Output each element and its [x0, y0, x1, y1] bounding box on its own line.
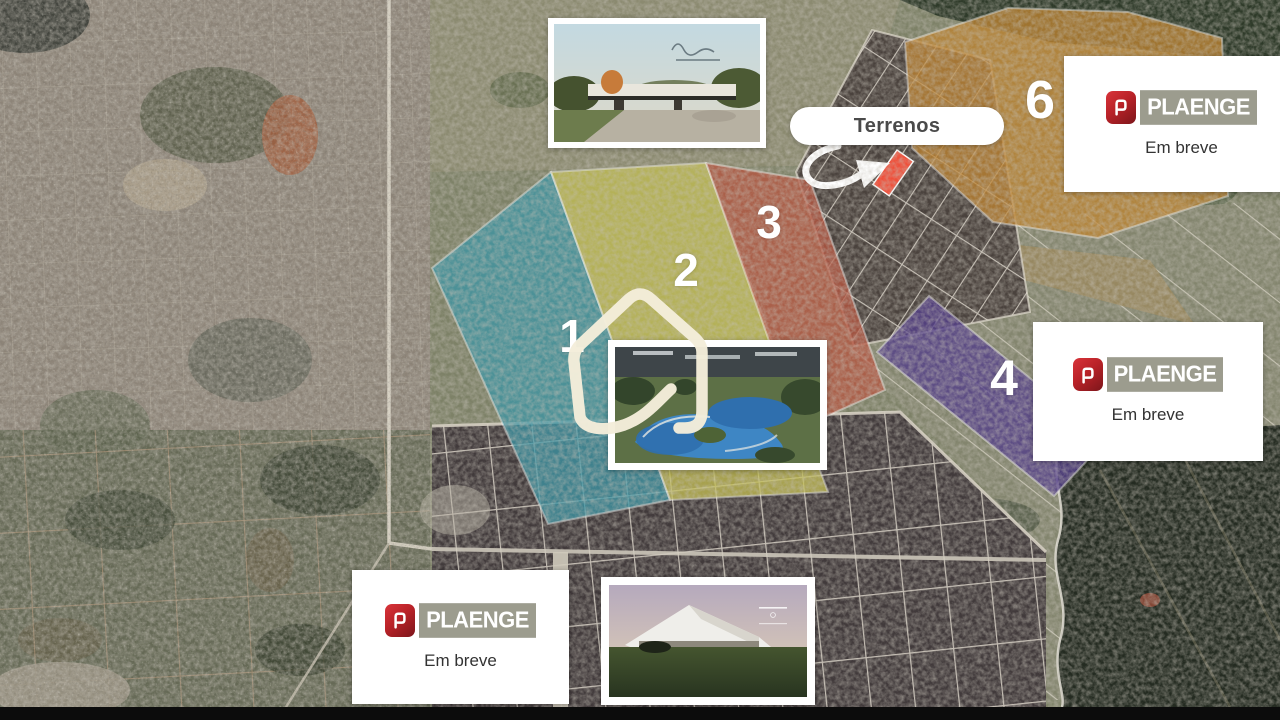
entrance-photo [554, 24, 760, 142]
plaenge-card-bottom-left: PLAENGE Em breve [352, 570, 569, 704]
terrenos-pill-label: Terrenos [854, 115, 941, 138]
plaenge-card-right: PLAENGE Em breve [1033, 322, 1263, 461]
clubhouse-photo-card [601, 577, 815, 705]
status-text: Em breve [424, 651, 497, 671]
status-text: Em breve [1112, 405, 1185, 425]
plaenge-logo: PLAENGE [385, 604, 536, 637]
resort-photo [615, 347, 820, 463]
plaenge-icon [385, 604, 415, 637]
letterbox-bar [0, 707, 1280, 720]
plaenge-wordmark: PLAENGE [1107, 357, 1224, 392]
zone-2-label: 2 [673, 247, 699, 293]
plaenge-card-top-right: PLAENGE Em breve [1064, 56, 1280, 192]
lawn [609, 647, 807, 697]
plaenge-wordmark: PLAENGE [419, 603, 536, 638]
resort-photo-card [608, 340, 827, 470]
orange-tree [601, 70, 623, 94]
terrenos-pill: Terrenos [790, 107, 1004, 145]
plaenge-icon [1106, 91, 1136, 124]
zone-1-label: 1 [559, 313, 585, 359]
zone-4-label: 4 [990, 353, 1018, 403]
plaenge-wordmark: PLAENGE [1140, 90, 1257, 125]
status-text: Em breve [1145, 138, 1218, 158]
plaenge-logo: PLAENGE [1073, 358, 1224, 391]
zone-3-label: 3 [756, 199, 782, 245]
plaenge-logo: PLAENGE [1106, 91, 1257, 124]
clubhouse-photo [609, 585, 807, 697]
entrance-photo-card [548, 18, 766, 148]
masterplan-map: 1 2 3 4 6 Terrenos [0, 0, 1280, 720]
zone-6-label: 6 [1025, 73, 1055, 127]
pool-island [694, 427, 726, 443]
plaenge-icon [1073, 358, 1103, 391]
